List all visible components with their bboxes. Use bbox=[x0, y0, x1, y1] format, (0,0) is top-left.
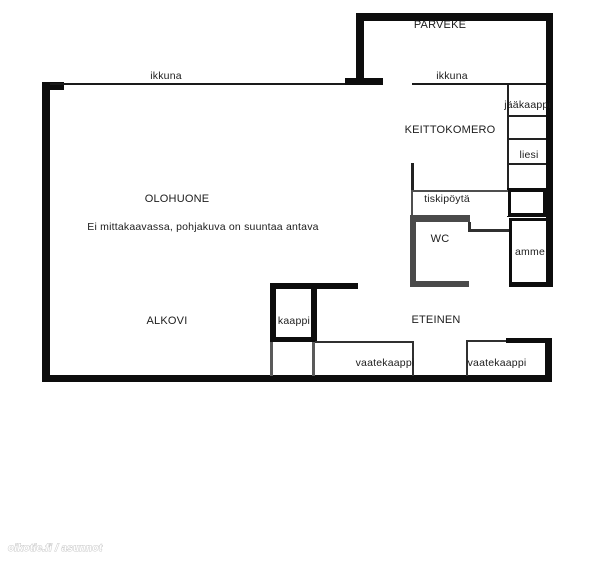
label-amme: amme bbox=[515, 247, 545, 258]
wall-kaappi-right bbox=[311, 283, 317, 342]
label-liesi: liesi bbox=[519, 150, 538, 161]
wall-wc-top bbox=[410, 215, 470, 222]
wall-right-exterior bbox=[546, 13, 553, 287]
line-kaappi-niche-left bbox=[270, 342, 273, 376]
wall-right-bottom bbox=[545, 338, 552, 382]
label-olohuone: OLOHUONE bbox=[145, 194, 210, 205]
line-counter-1 bbox=[508, 138, 546, 140]
line-kaappi-niche-right bbox=[312, 342, 315, 376]
line-liesi-bottom bbox=[508, 163, 546, 165]
vaatekaappi-left-top bbox=[315, 341, 414, 343]
vaatekaappi-right-top-thin bbox=[466, 340, 508, 342]
wall-balcony-left-foot bbox=[345, 78, 383, 85]
window-line-olohuone bbox=[50, 83, 358, 85]
label-parveke: PARVEKE bbox=[414, 20, 466, 31]
label-alkovi: ALKOVI bbox=[147, 316, 188, 327]
window-line-keittokomero bbox=[412, 83, 546, 85]
wall-kaappi-left bbox=[270, 283, 276, 342]
wall-wc-bottom bbox=[410, 281, 469, 287]
label-keittokomero: KEITTOKOMERO bbox=[405, 125, 496, 136]
label-tiskipoyta: tiskipöytä bbox=[424, 194, 470, 205]
wall-left-exterior bbox=[42, 82, 50, 382]
label-ikkuna-keittokomero: ikkuna bbox=[436, 71, 468, 82]
label-ikkuna-olohuone: ikkuna bbox=[150, 71, 182, 82]
wall-wc-left bbox=[410, 215, 416, 287]
label-eteinen: ETEINEN bbox=[411, 315, 460, 326]
wall-kaappi-bottom bbox=[270, 337, 317, 342]
wall-bottom-exterior bbox=[42, 375, 552, 382]
line-jaakaappi-bottom bbox=[508, 115, 546, 117]
label-vaatekaappi-left: vaatekaappi bbox=[356, 358, 415, 369]
watermark-oikotie: oikotie.fi / asunnot bbox=[8, 543, 102, 554]
sink-unit-box bbox=[507, 188, 547, 217]
floorplan-canvas: PARVEKE ikkuna ikkuna jääkaappi KEITTOKO… bbox=[0, 0, 600, 565]
label-vaatekaappi-right: vaatekaappi bbox=[468, 358, 527, 369]
label-jaakaappi: jääkaappi bbox=[504, 100, 551, 111]
wall-kitchen-partition bbox=[411, 163, 414, 191]
wall-balcony-left bbox=[356, 13, 364, 79]
label-kaappi: kaappi bbox=[278, 316, 310, 327]
line-wc-duct-horizontal bbox=[468, 229, 512, 232]
label-wc: WC bbox=[431, 234, 450, 245]
label-disclaimer: Ei mittakaavassa, pohjakuva on suuntaa a… bbox=[87, 222, 318, 233]
